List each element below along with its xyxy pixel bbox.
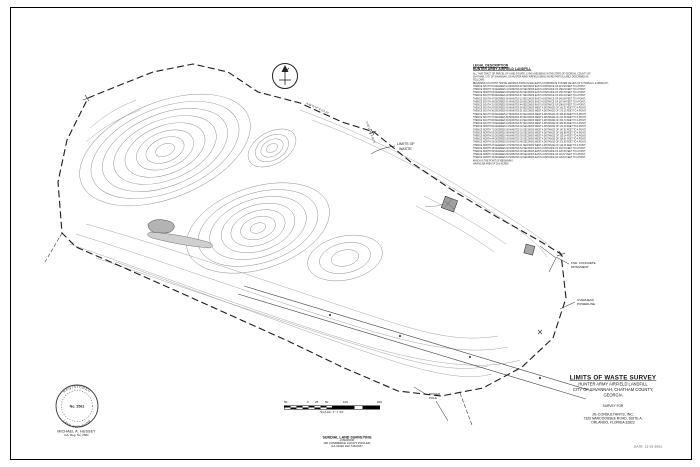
structure-feature-2 bbox=[524, 244, 535, 255]
date-stamp: DATE: 12-15-2003 bbox=[634, 445, 694, 449]
surveyor-registration: GA. Reg. No. 2561 bbox=[24, 434, 129, 437]
title-line-1: HUNTER ARMY AIRFIELD LANDFILL bbox=[538, 382, 688, 387]
scale-bar-checker bbox=[284, 406, 332, 410]
client-address-2: ORLANDO, FLORIDA 32822 bbox=[538, 421, 688, 425]
client-address-1: 7320 NARCOOSSEE ROAD, SUITE A, bbox=[538, 417, 688, 421]
client-name: JG CONSULTANTS, INC. bbox=[538, 412, 688, 417]
north-arrow-icon bbox=[273, 64, 298, 89]
title-line-2: CITY OF SAVANNAH, CHATHAM COUNTY, bbox=[538, 388, 688, 393]
scale-tick-label: 200 bbox=[377, 401, 382, 404]
scale-tick-label: 100 bbox=[343, 401, 348, 404]
limits-of-waste-label-1: LIMITS OF bbox=[397, 142, 415, 146]
survey-for-label: SURVEY FOR bbox=[538, 405, 688, 409]
scale-tick-label: 50 bbox=[284, 401, 287, 404]
pole-label-2: POLE bbox=[429, 396, 437, 400]
scale-bar-graphic bbox=[284, 406, 380, 410]
contour-mound-d bbox=[303, 229, 386, 288]
surveyor-name-block: MICHAEL A. HUSSEY GA. Reg. No. 2561 bbox=[24, 429, 129, 437]
drawing-title: LIMITS OF WASTE SURVEY bbox=[538, 374, 688, 381]
firm-line-4: GA 31322 912-748-0347 bbox=[292, 445, 402, 448]
contour-hill-b bbox=[175, 166, 341, 290]
structure-feature-1 bbox=[425, 196, 458, 212]
seal-number: No. 2561 bbox=[70, 405, 85, 409]
drainage-corridor bbox=[45, 233, 592, 425]
firm-block: SUNDIAL LAND SURVEYING LONGWOOD 100 COMM… bbox=[292, 435, 402, 448]
contour-knoll-c bbox=[241, 121, 302, 175]
bearing-label-2: N 88°31'07" E 212.40' bbox=[306, 102, 330, 115]
scale-bar-solid bbox=[332, 406, 380, 410]
scale-tick-label: 50 bbox=[325, 401, 328, 404]
legal-body: ALL THAT TRACT OR PARCEL OF LAND SITUATE… bbox=[473, 73, 688, 166]
scale-bar-labels: 5002550100200 bbox=[284, 401, 389, 405]
monument-label-2: MONUMENT bbox=[571, 265, 589, 269]
powerline-label-2: POWERLINE bbox=[577, 302, 595, 306]
scale-caption: SCALE: 1" = 50' bbox=[284, 411, 380, 414]
seal-text-top: REGISTERED bbox=[62, 385, 92, 394]
limits-of-waste-label-2: WASTE bbox=[399, 147, 412, 151]
scale-tick-label: 0 bbox=[307, 401, 309, 404]
title-line-3: GEORGIA bbox=[538, 393, 688, 398]
legal-subheading: HUNTER ARMY AIRFIELD LANDFILL bbox=[473, 68, 688, 72]
surveyor-name: MICHAEL A. HUSSEY bbox=[24, 429, 129, 434]
legal-description: LEGAL DESCRIPTION HUNTER ARMY AIRFIELD L… bbox=[473, 64, 688, 166]
scale-bar: 5002550100200 SCALE: 1" = 50' bbox=[284, 401, 389, 423]
survey-sheet: LIMITS OF WASTE FND. CONCRETE MONUMENT O… bbox=[0, 0, 700, 467]
pond-feature bbox=[147, 220, 212, 249]
title-block: LIMITS OF WASTE SURVEY HUNTER ARMY AIRFI… bbox=[538, 374, 688, 425]
seal-text-bottom: LAND SURVEYOR bbox=[62, 419, 92, 429]
legal-line: HAVING AN AREA OF 28.6 ACRES bbox=[473, 162, 688, 165]
scale-tick-label: 25 bbox=[315, 401, 318, 404]
